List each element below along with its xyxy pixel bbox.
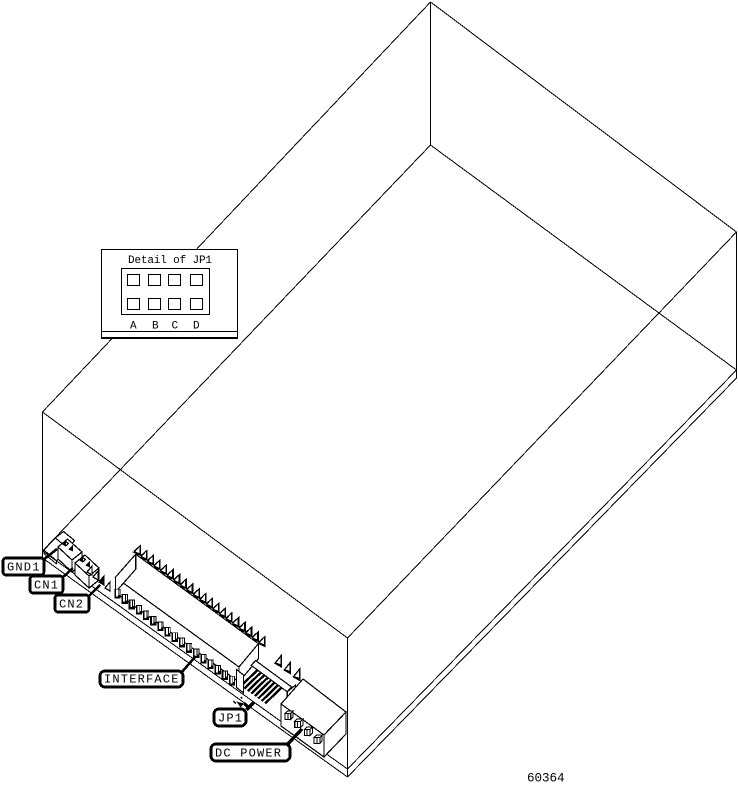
svg-text:B: B	[152, 321, 159, 333]
svg-text:GND1: GND1	[7, 561, 41, 575]
svg-text:C: C	[172, 321, 179, 333]
svg-text:D: D	[193, 321, 200, 333]
svg-text:CN2: CN2	[59, 598, 84, 612]
svg-text:JP1: JP1	[218, 712, 243, 726]
svg-text:DC POWER: DC POWER	[215, 747, 282, 761]
svg-text:A: A	[130, 321, 137, 333]
svg-text:Detail of JP1: Detail of JP1	[128, 255, 212, 267]
svg-text:60364: 60364	[527, 772, 565, 786]
svg-text:INTERFACE: INTERFACE	[104, 673, 180, 687]
svg-text:CN1: CN1	[34, 579, 59, 593]
